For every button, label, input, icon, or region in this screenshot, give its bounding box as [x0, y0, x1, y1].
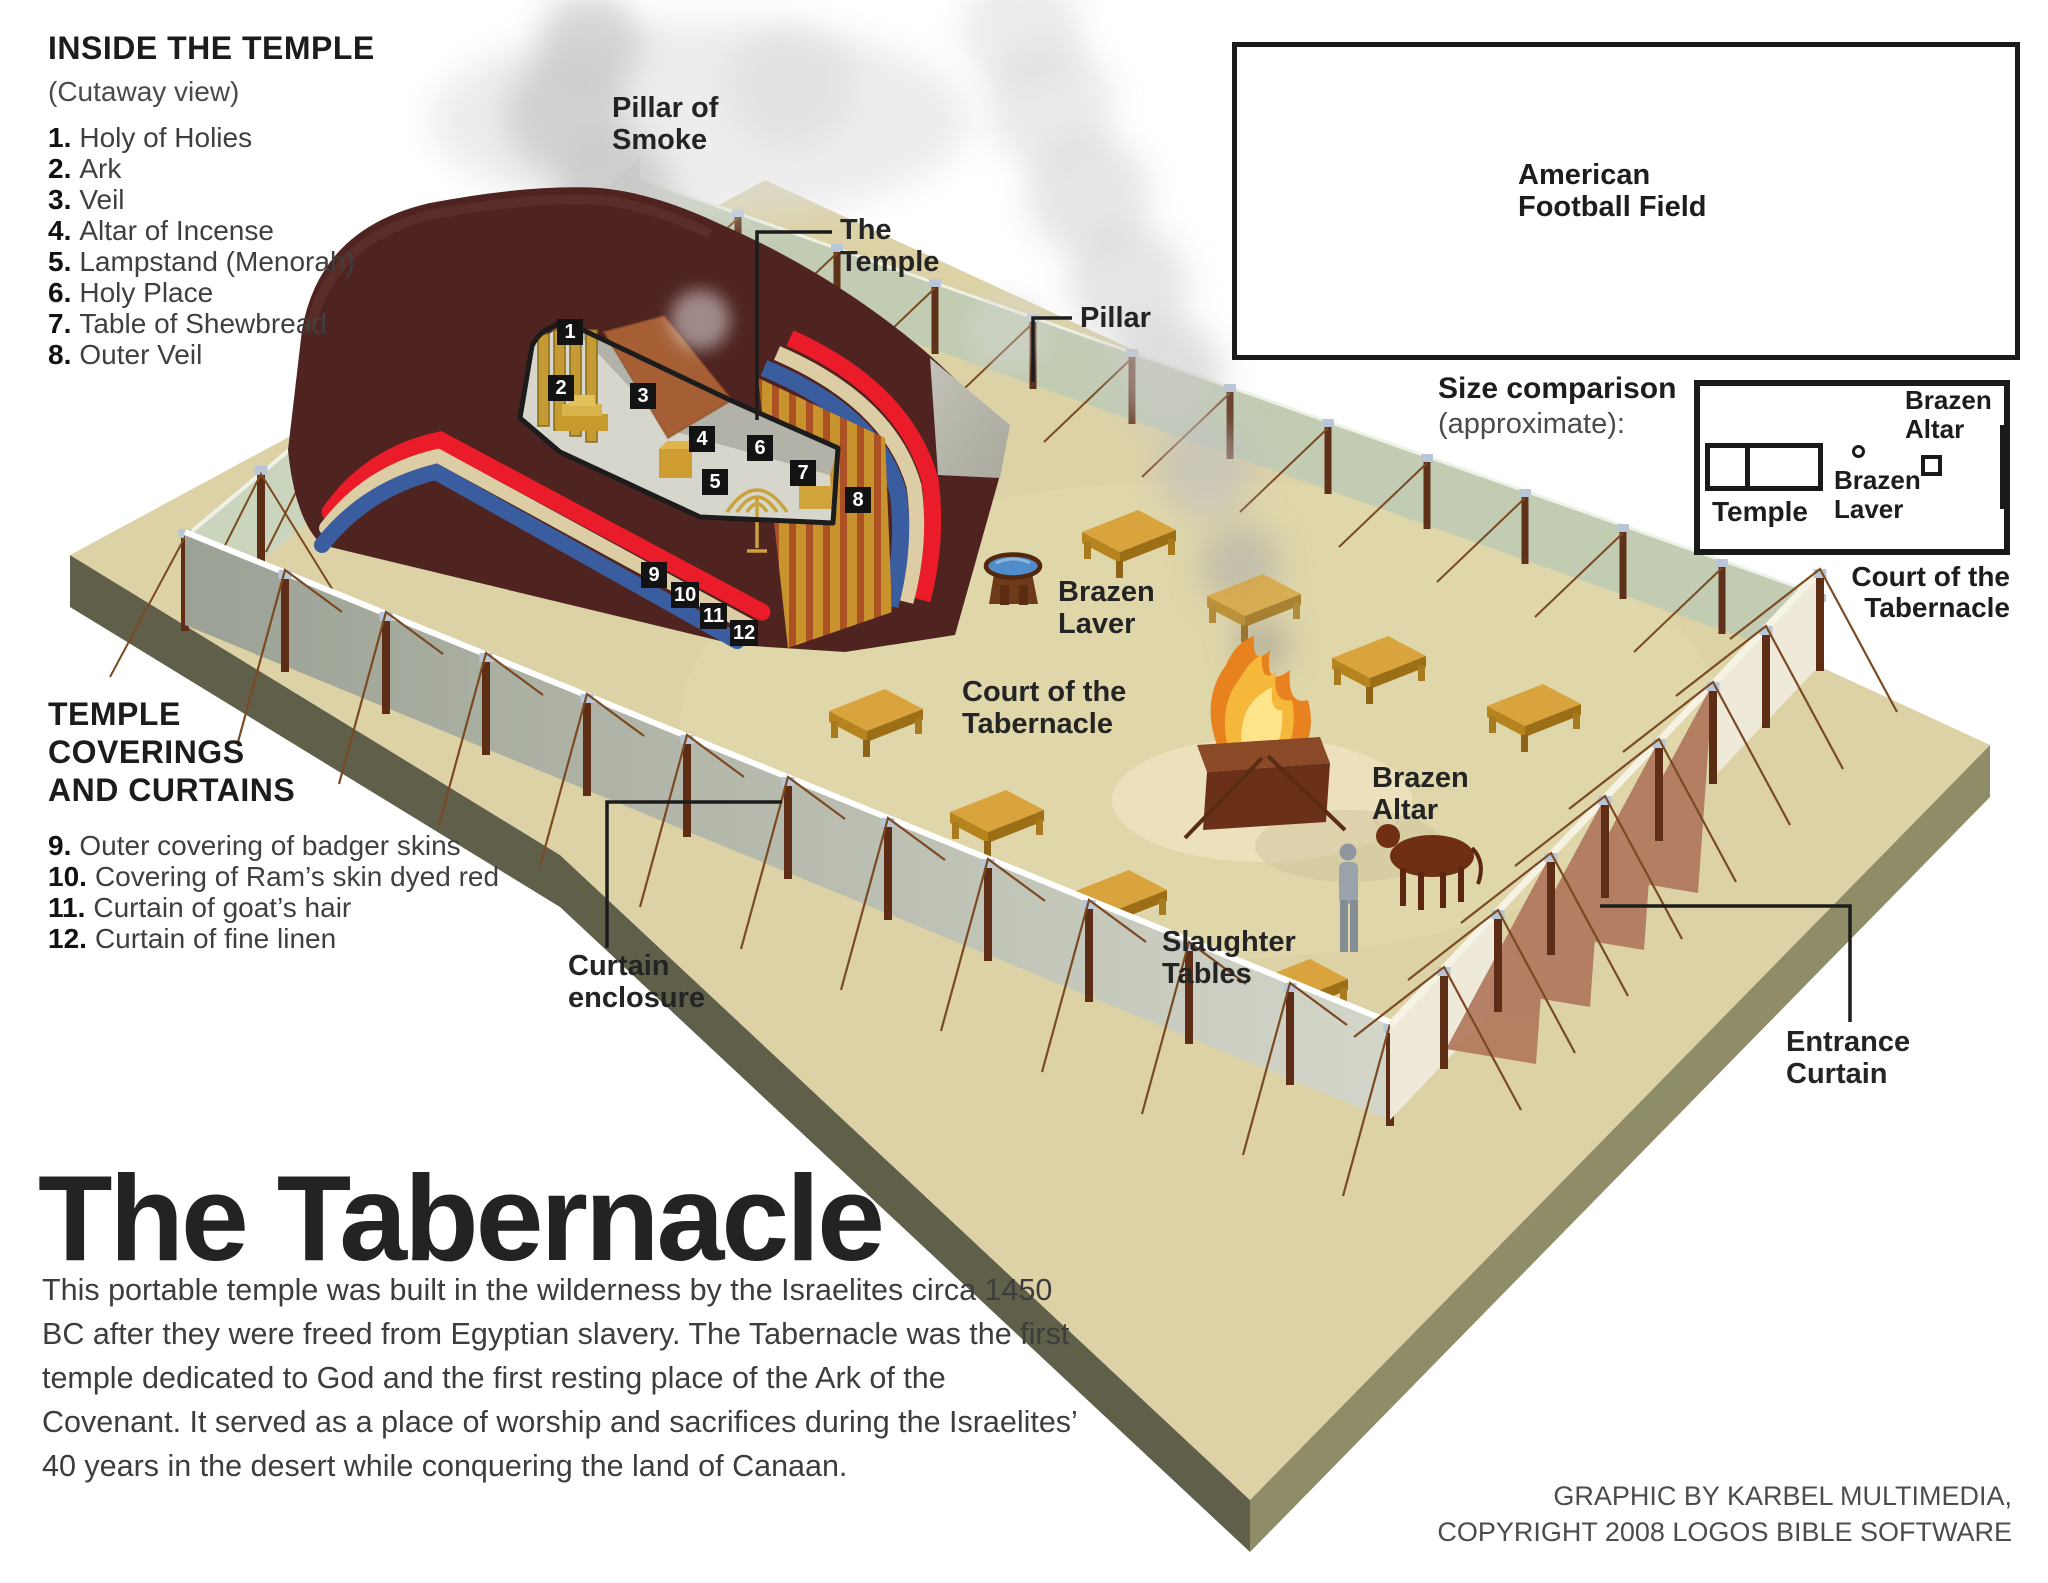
list-item: 1.Holy of Holies	[48, 122, 355, 153]
coverings-list: 9.Outer covering of badger skins 10.Cove…	[48, 830, 499, 954]
marker-6: 6	[747, 435, 773, 461]
list-item: 12.Curtain of fine linen	[48, 923, 499, 954]
list-item: 3.Veil	[48, 184, 355, 215]
inside-temple-list: 1.Holy of Holies 2.Ark 3.Veil 4.Altar of…	[48, 122, 355, 370]
comparison-temple-divider	[1745, 446, 1750, 488]
inside-temple-heading: INSIDE THE TEMPLE	[48, 30, 375, 67]
page-title: The Tabernacle	[38, 1148, 882, 1288]
credits-line1: GRAPHIC BY KARBEL MULTIMEDIA,	[1300, 1478, 2012, 1514]
pillar-label: Pillar	[1080, 302, 1190, 334]
list-item: 5.Lampstand (Menorah)	[48, 246, 355, 277]
size-comparison-heading: Size comparison	[1438, 372, 1676, 405]
marker-12: 12	[730, 620, 758, 646]
football-field-label: American Football Field	[1518, 160, 1748, 224]
list-item: 6.Holy Place	[48, 277, 355, 308]
marker-7: 7	[790, 460, 816, 486]
list-item: 10.Covering of Ram’s skin dyed red	[48, 861, 499, 892]
tabernacle-infographic: INSIDE THE TEMPLE (Cutaway view) 1.Holy …	[0, 0, 2048, 1583]
court-of-tabernacle-label: Court of the Tabernacle	[962, 676, 1162, 741]
marker-9: 9	[641, 562, 667, 588]
brazen-laver-graphic	[986, 555, 1040, 606]
size-comparison-subheading: (approximate):	[1438, 408, 1625, 441]
marker-1: 1	[557, 319, 583, 345]
comparison-court-label: Court of the Tabernacle	[1830, 562, 2010, 624]
curtain-enclosure-label: Curtain enclosure	[568, 950, 738, 1015]
comparison-temple-rect	[1705, 443, 1823, 491]
list-item: 11.Curtain of goat’s hair	[48, 892, 499, 923]
list-item: 2.Ark	[48, 153, 355, 184]
shewbread-table-graphic	[799, 486, 837, 509]
slaughter-tables-label: Slaughter Tables	[1162, 926, 1332, 991]
entrance-curtain-label: Entrance Curtain	[1786, 1026, 1956, 1091]
comparison-temple-label: Temple	[1712, 497, 1822, 528]
marker-3: 3	[630, 383, 656, 409]
marker-10: 10	[671, 582, 699, 608]
marker-4: 4	[689, 426, 715, 452]
list-item: 9.Outer covering of badger skins	[48, 830, 499, 861]
brazen-altar-label: Brazen Altar	[1372, 762, 1512, 827]
credits: GRAPHIC BY KARBEL MULTIMEDIA, COPYRIGHT …	[1300, 1478, 2012, 1550]
marker-2: 2	[548, 375, 574, 401]
list-item: 8.Outer Veil	[48, 339, 355, 370]
altar-of-incense-graphic	[659, 449, 692, 478]
credits-line2: COPYRIGHT 2008 LOGOS BIBLE SOFTWARE	[1300, 1514, 2012, 1550]
comparison-laver-label: Brazen Laver	[1834, 466, 1939, 523]
list-item: 7.Table of Shewbread	[48, 308, 355, 339]
marker-5: 5	[702, 469, 728, 495]
coverings-heading: TEMPLE COVERINGS AND CURTAINS	[48, 695, 298, 809]
comparison-laver-circle	[1852, 445, 1865, 458]
marker-8: 8	[845, 487, 871, 513]
inside-temple-subheading: (Cutaway view)	[48, 76, 239, 108]
pillar-of-smoke-label: Pillar of Smoke	[612, 92, 762, 157]
list-item: 4.Altar of Incense	[48, 215, 355, 246]
brazen-laver-label: Brazen Laver	[1058, 576, 1178, 641]
the-temple-label: The Temple	[840, 214, 960, 279]
marker-11: 11	[700, 603, 727, 629]
description-paragraph: This portable temple was built in the wi…	[42, 1268, 1082, 1488]
comparison-altar-label: Brazen Altar	[1905, 386, 2010, 443]
